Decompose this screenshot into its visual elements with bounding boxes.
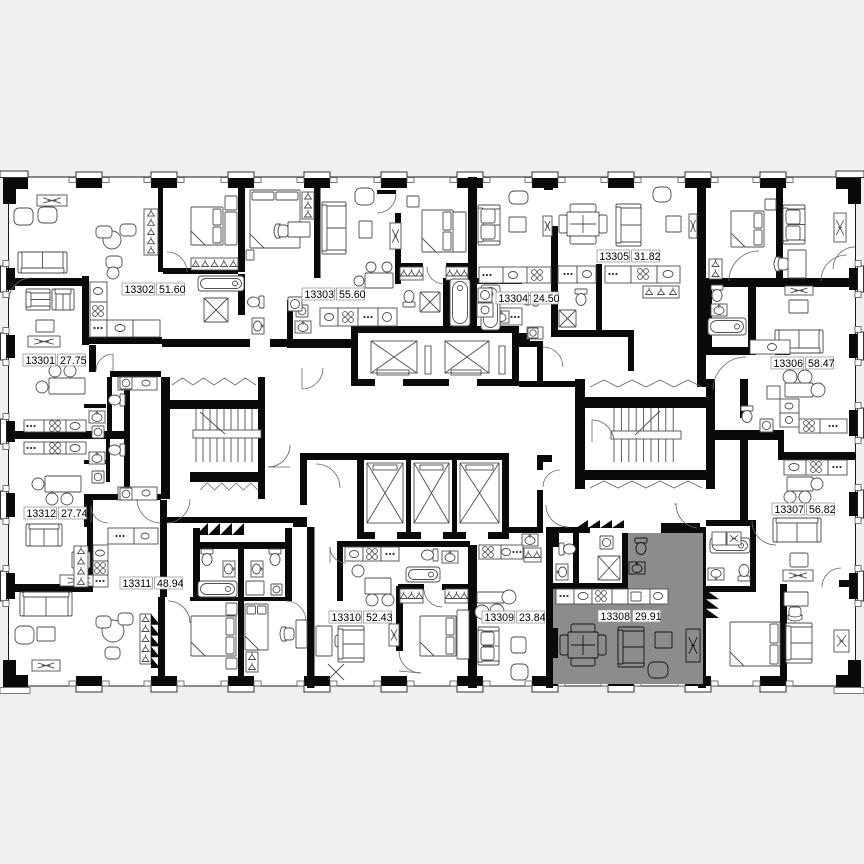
svg-text:13305: 13305	[600, 251, 630, 263]
svg-text:13306: 13306	[774, 358, 804, 370]
svg-text:23.84: 23.84	[519, 612, 546, 624]
svg-text:13309: 13309	[485, 612, 515, 624]
svg-text:13307: 13307	[775, 504, 805, 516]
svg-text:13303: 13303	[305, 289, 335, 301]
svg-text:13311: 13311	[123, 578, 152, 590]
svg-text:24.50: 24.50	[533, 293, 560, 305]
svg-text:13312: 13312	[27, 508, 57, 520]
svg-text:55.60: 55.60	[339, 289, 366, 301]
svg-text:13304: 13304	[499, 293, 529, 305]
svg-text:13310: 13310	[332, 612, 362, 624]
svg-text:58.47: 58.47	[808, 358, 835, 370]
svg-text:52.43: 52.43	[366, 612, 393, 624]
svg-text:13301: 13301	[26, 355, 56, 367]
svg-text:27.75: 27.75	[60, 355, 87, 367]
svg-text:51.60: 51.60	[159, 284, 186, 296]
svg-text:27.74: 27.74	[61, 508, 88, 520]
svg-text:13308: 13308	[601, 611, 631, 623]
svg-text:31.82: 31.82	[634, 251, 661, 263]
svg-text:56.82: 56.82	[809, 504, 836, 516]
svg-text:48.94: 48.94	[157, 578, 184, 590]
svg-text:13302: 13302	[125, 284, 155, 296]
svg-text:29.91: 29.91	[635, 611, 662, 623]
